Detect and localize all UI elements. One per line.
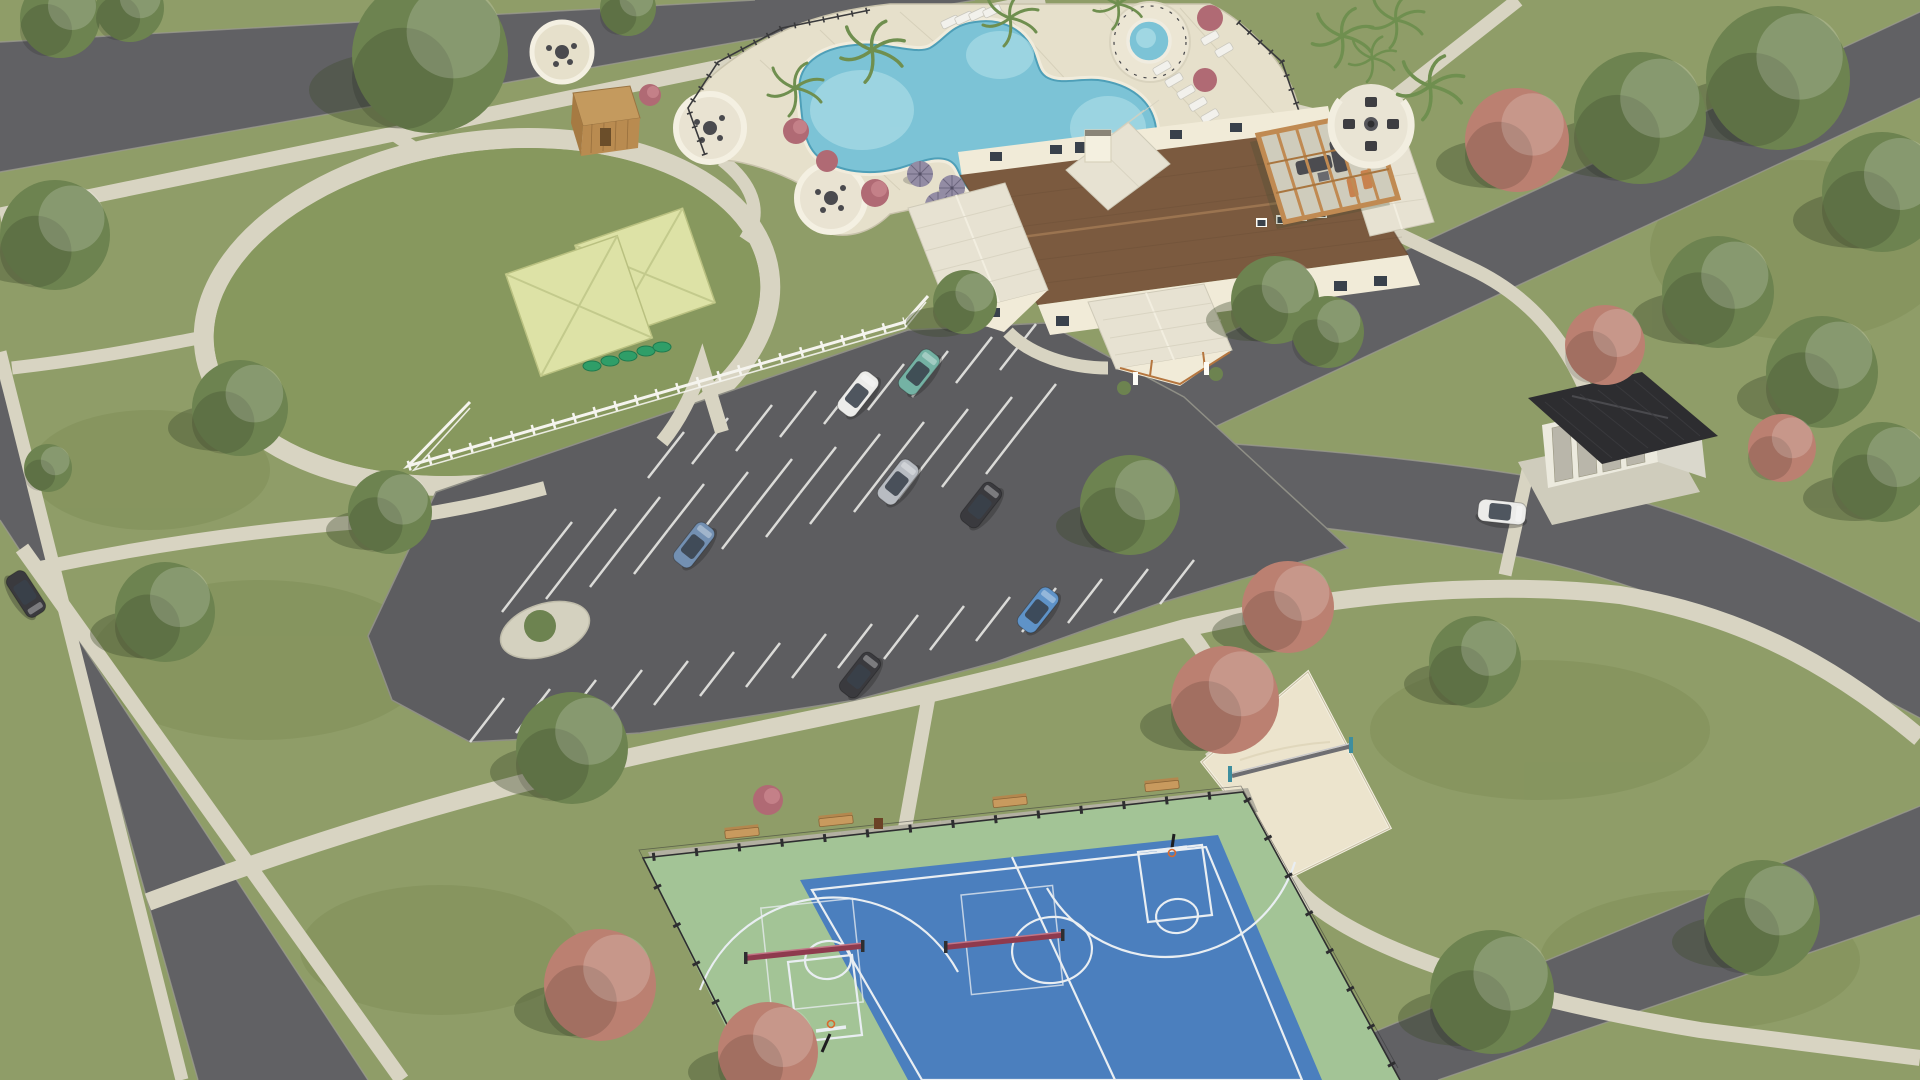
spa: [1110, 2, 1190, 82]
island-shrub: [524, 610, 556, 642]
trash-receptacle: [874, 818, 883, 829]
net-post: [1349, 737, 1353, 753]
site-plan-rendering: [0, 0, 1920, 1080]
shed-door: [600, 128, 611, 146]
storage-shed: [571, 86, 640, 156]
net-post: [1228, 766, 1232, 782]
rendering-stage: [0, 0, 1920, 1080]
